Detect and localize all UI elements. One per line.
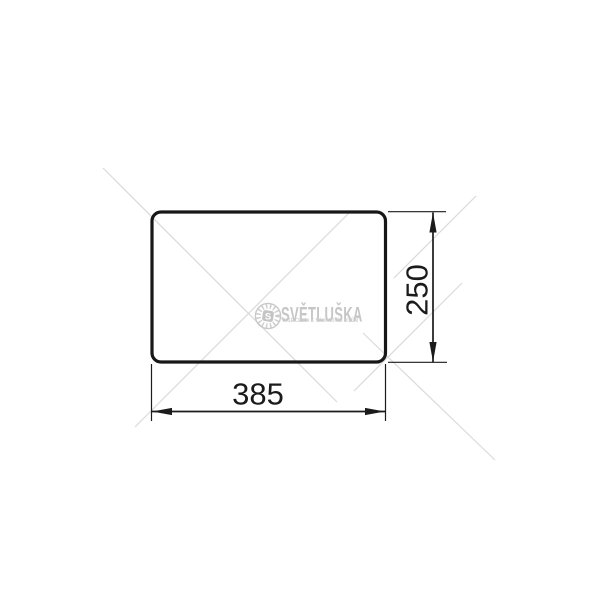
- drawing-figure: S: [0, 0, 600, 600]
- technical-drawing-canvas: S 385 250 SVĚTLUŠKA VAŠE CESTA K NÁHRADN…: [0, 0, 600, 600]
- watermark-logo: S: [255, 303, 280, 328]
- arrowhead-right-icon: [365, 408, 385, 415]
- width-dimension-label: 385: [232, 379, 284, 410]
- arrowhead-left-icon: [152, 408, 172, 415]
- watermark-line: [363, 333, 495, 460]
- height-dimension-label: 250: [402, 264, 433, 316]
- arrowhead-up-icon: [429, 213, 436, 233]
- logo-letter: S: [265, 312, 271, 323]
- panel-outline: [152, 212, 386, 362]
- arrowhead-down-icon: [429, 342, 436, 362]
- watermark-line: [103, 168, 337, 402]
- watermark-tagline-text: VAŠE CESTA K NÁHRADNÍM DÍLŮM: [282, 319, 358, 324]
